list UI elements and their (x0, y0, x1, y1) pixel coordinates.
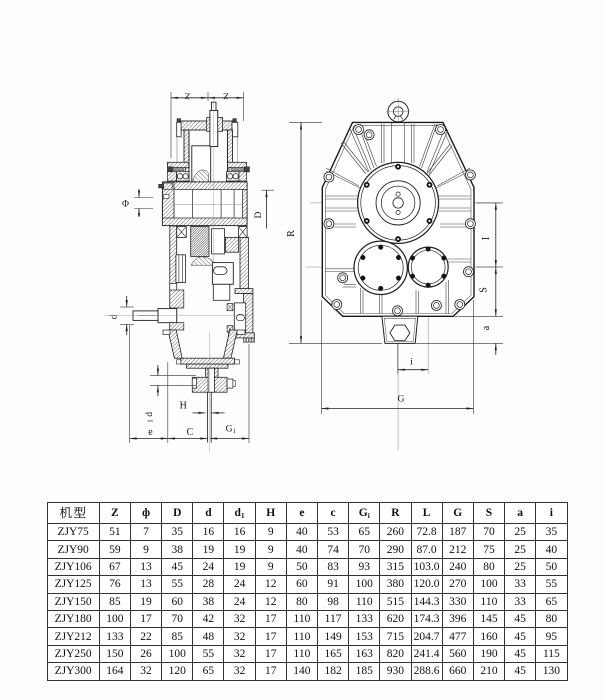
svg-text:Z: Z (184, 91, 190, 101)
svg-text:D: D (254, 211, 264, 218)
svg-text:i: i (234, 427, 236, 435)
svg-text:1: 1 (147, 419, 155, 423)
svg-text:Z: Z (223, 91, 229, 101)
svg-text:d: d (145, 412, 155, 417)
svg-text:i: i (410, 358, 413, 368)
svg-text:G: G (398, 395, 405, 405)
svg-text:H: H (180, 401, 187, 412)
svg-text:Φ: Φ (122, 200, 129, 210)
svg-text:C: C (187, 427, 194, 438)
svg-text:R: R (286, 230, 297, 237)
svg-text:G: G (226, 425, 233, 435)
svg-text:e: e (148, 427, 153, 438)
svg-text:a: a (481, 325, 492, 330)
svg-text:I: I (481, 237, 492, 240)
svg-text:S: S (479, 287, 490, 293)
svg-text:d: d (110, 314, 120, 319)
